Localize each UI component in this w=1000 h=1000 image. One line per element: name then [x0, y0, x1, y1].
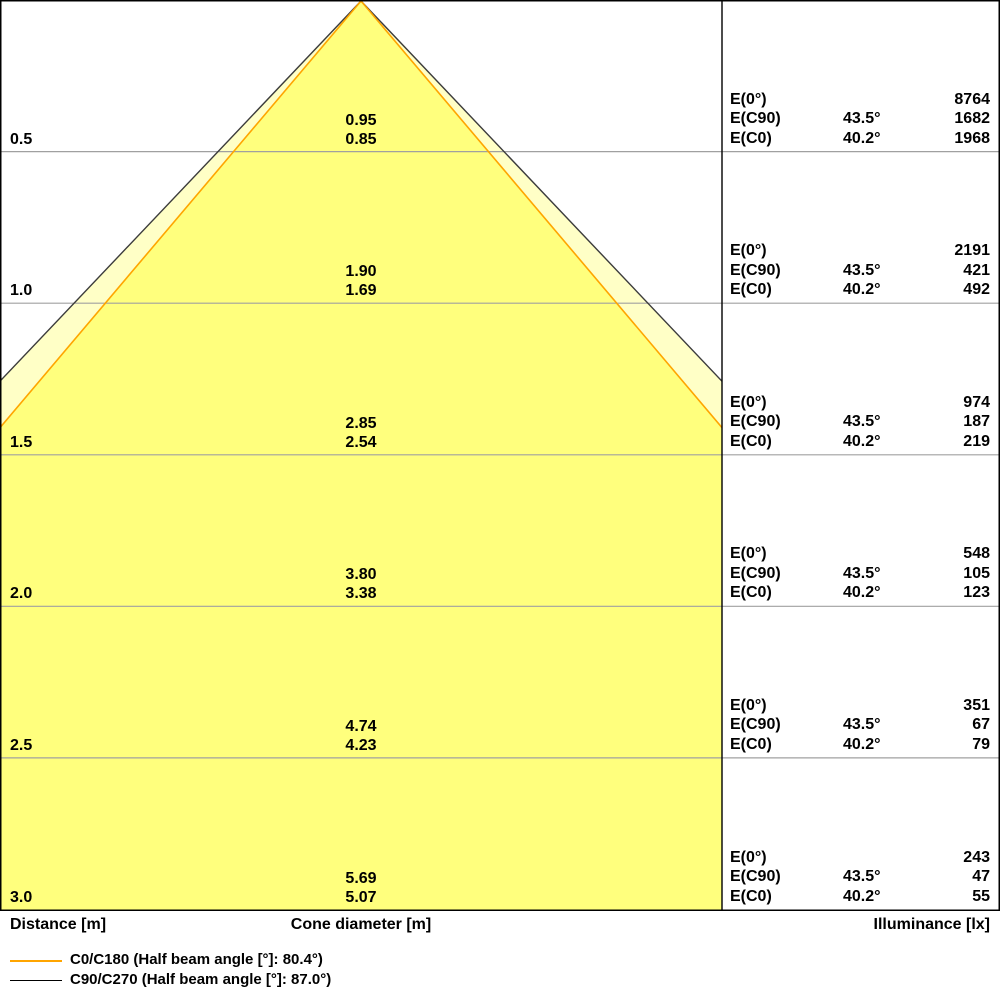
- ec90-value: 47: [972, 867, 990, 887]
- ec0-value: 55: [972, 887, 990, 907]
- e0-value: 548: [963, 544, 990, 564]
- illuminance-row-group: E(0°)548 E(C90)43.5°105 E(C0)40.2°123: [722, 544, 1000, 603]
- e0-label: E(0°): [730, 393, 767, 413]
- ec0-value: 123: [963, 583, 990, 603]
- ec90-label: E(C90): [730, 867, 781, 887]
- cone-diameter-c0: 4.23: [311, 736, 411, 755]
- cone-diameter-values: 0.95 0.85: [311, 111, 411, 149]
- illuminance-row-group: E(0°)243 E(C90)43.5°47 E(C0)40.2°55: [722, 848, 1000, 907]
- e0-value: 974: [963, 393, 990, 413]
- cone-diameter-c0: 2.54: [311, 433, 411, 452]
- cone-diameter-c90: 4.74: [311, 717, 411, 736]
- axis-label-illuminance: Illuminance [lx]: [874, 916, 990, 934]
- ec90-value: 67: [972, 715, 990, 735]
- e0-value: 351: [963, 696, 990, 716]
- ec90-value: 421: [963, 261, 990, 281]
- distance-label: 0.5: [10, 131, 80, 149]
- ec0-angle: 40.2°: [843, 735, 881, 755]
- ec90-angle: 43.5°: [843, 412, 881, 432]
- ec0-value: 492: [963, 280, 990, 300]
- cone-diameter-c90: 3.80: [311, 565, 411, 584]
- legend-label-c0-c180: C0/C180 (Half beam angle [°]: 80.4°): [70, 951, 323, 968]
- cone-diameter-c90: 0.95: [311, 111, 411, 130]
- cone-diameter-c0: 5.07: [311, 888, 411, 907]
- e0-label: E(0°): [730, 696, 767, 716]
- ec90-angle: 43.5°: [843, 715, 881, 735]
- ec0-angle: 40.2°: [843, 432, 881, 452]
- ec90-angle: 43.5°: [843, 564, 881, 584]
- ec90-value: 187: [963, 412, 990, 432]
- cone-diameter-c90: 1.90: [311, 262, 411, 281]
- distance-label: 3.0: [10, 889, 80, 907]
- ec90-label: E(C90): [730, 412, 781, 432]
- ec90-angle: 43.5°: [843, 261, 881, 281]
- cone-diagram-page: 0.5 0.95 0.85 E(0°)8764 E(C90)43.5°1682 …: [0, 0, 1000, 1000]
- ec90-label: E(C90): [730, 109, 781, 129]
- ec0-angle: 40.2°: [843, 887, 881, 907]
- ec0-label: E(C0): [730, 583, 772, 603]
- e0-label: E(0°): [730, 544, 767, 564]
- distance-label: 2.5: [10, 737, 80, 755]
- legend-label-c90-c270: C90/C270 (Half beam angle [°]: 87.0°): [70, 971, 331, 988]
- e0-label: E(0°): [730, 90, 767, 110]
- distance-label: 1.5: [10, 434, 80, 452]
- ec90-label: E(C90): [730, 564, 781, 584]
- ec0-value: 79: [972, 735, 990, 755]
- cone-diameter-c0: 3.38: [311, 584, 411, 603]
- ec0-angle: 40.2°: [843, 280, 881, 300]
- cone-diameter-c90: 5.69: [311, 869, 411, 888]
- ec90-label: E(C90): [730, 715, 781, 735]
- ec90-label: E(C90): [730, 261, 781, 281]
- ec0-label: E(C0): [730, 735, 772, 755]
- illuminance-row-group: E(0°)8764 E(C90)43.5°1682 E(C0)40.2°1968: [722, 90, 1000, 149]
- cone-diameter-values: 2.85 2.54: [311, 414, 411, 452]
- ec90-value: 1682: [954, 109, 990, 129]
- e0-value: 8764: [954, 90, 990, 110]
- ec0-label: E(C0): [730, 887, 772, 907]
- distance-label: 1.0: [10, 282, 80, 300]
- ec0-value: 219: [963, 432, 990, 452]
- e0-label: E(0°): [730, 848, 767, 868]
- cone-diameter-c90: 2.85: [311, 414, 411, 433]
- cone-diameter-c0: 1.69: [311, 281, 411, 300]
- ec90-angle: 43.5°: [843, 867, 881, 887]
- distance-label: 2.0: [10, 585, 80, 603]
- cone-diameter-values: 5.69 5.07: [311, 869, 411, 907]
- ec0-angle: 40.2°: [843, 583, 881, 603]
- illuminance-row-group: E(0°)351 E(C90)43.5°67 E(C0)40.2°79: [722, 696, 1000, 755]
- e0-label: E(0°): [730, 241, 767, 261]
- legend-line-c90-c270: [10, 980, 62, 981]
- ec0-label: E(C0): [730, 129, 772, 149]
- e0-value: 2191: [954, 241, 990, 261]
- ec0-angle: 40.2°: [843, 129, 881, 149]
- legend-line-c0-c180: [10, 960, 62, 962]
- ec90-angle: 43.5°: [843, 109, 881, 129]
- ec0-value: 1968: [954, 129, 990, 149]
- cone-diameter-values: 1.90 1.69: [311, 262, 411, 300]
- e0-value: 243: [963, 848, 990, 868]
- axis-label-distance: Distance [m]: [10, 916, 106, 934]
- illuminance-row-group: E(0°)974 E(C90)43.5°187 E(C0)40.2°219: [722, 393, 1000, 452]
- cone-diameter-values: 4.74 4.23: [311, 717, 411, 755]
- ec0-label: E(C0): [730, 432, 772, 452]
- illuminance-row-group: E(0°)2191 E(C90)43.5°421 E(C0)40.2°492: [722, 241, 1000, 300]
- ec0-label: E(C0): [730, 280, 772, 300]
- cone-diameter-values: 3.80 3.38: [311, 565, 411, 603]
- cone-diameter-c0: 0.85: [311, 130, 411, 149]
- ec90-value: 105: [963, 564, 990, 584]
- axis-label-cone-diameter: Cone diameter [m]: [261, 916, 461, 934]
